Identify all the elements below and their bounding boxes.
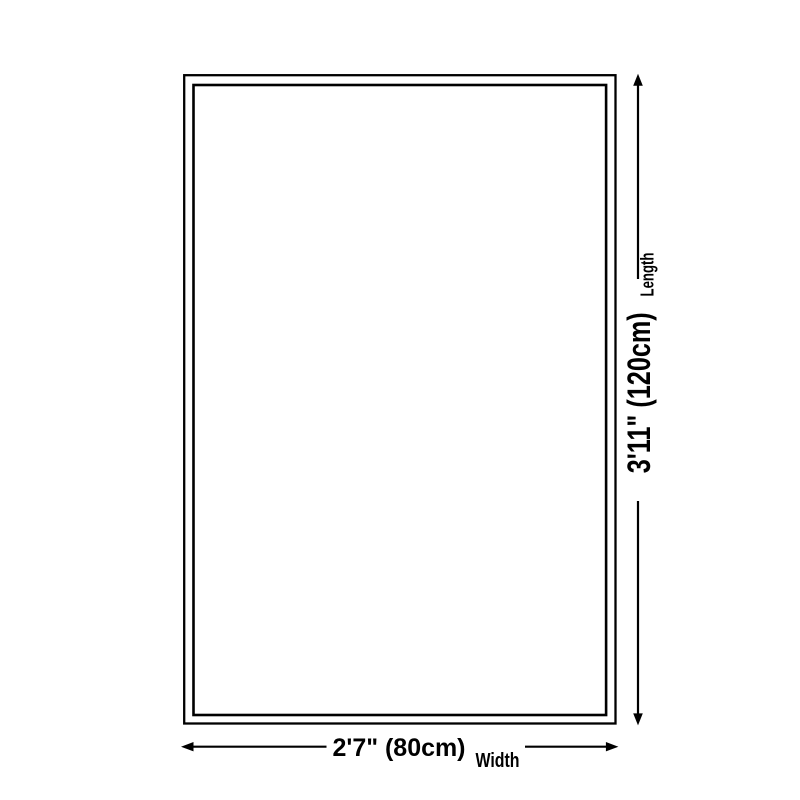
svg-text:Width: Width (476, 750, 520, 772)
svg-text:2'7" (80cm): 2'7" (80cm) (333, 735, 466, 762)
svg-text:3'11" (120cm): 3'11" (120cm) (621, 312, 657, 473)
svg-text:Length: Length (637, 253, 658, 297)
